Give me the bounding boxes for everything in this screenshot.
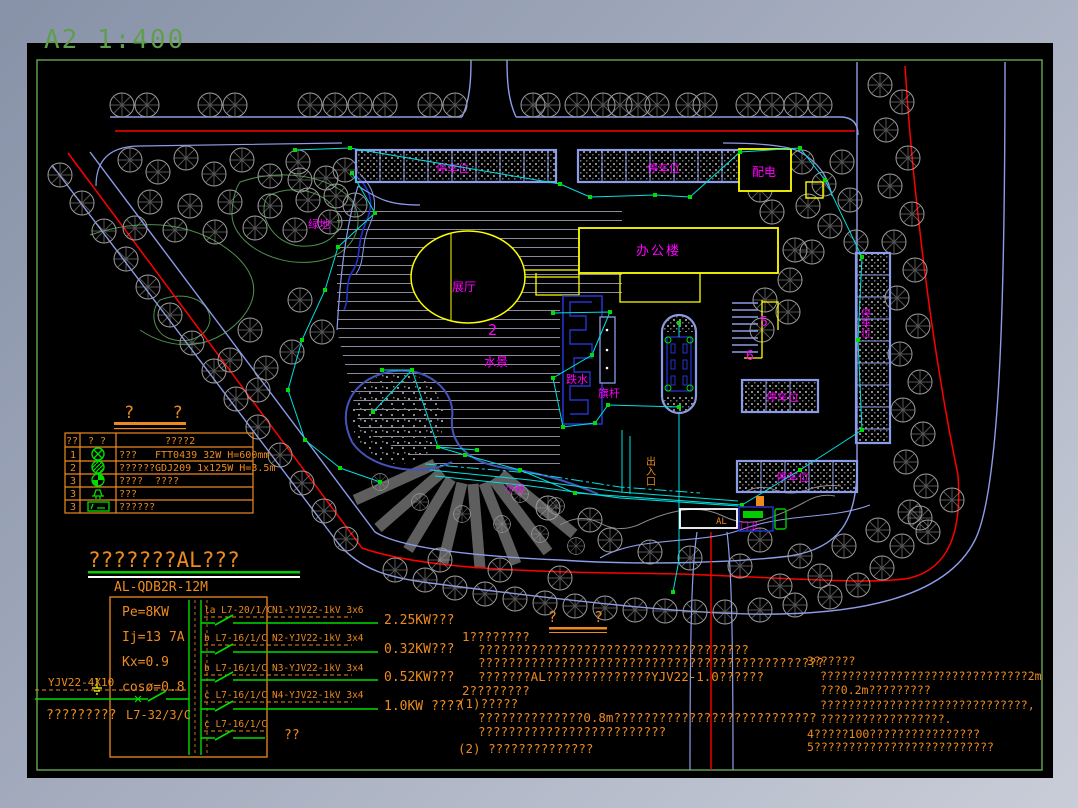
svg-text:Pe=8KW: Pe=8KW [122,605,169,620]
exhibition-hall [411,231,525,323]
incoming-breaker: L7-32/3/C [126,708,191,722]
cascade-label: 跌水 [566,372,588,386]
svg-text:1: 1 [70,450,76,461]
legend-col-desc: ????2 [165,436,195,447]
note-line: ???????AL??????????????YJV22-1.0?????? [478,669,764,684]
svg-text:??????: ?????? [119,463,155,474]
schematic-title: ???????AL??? [88,548,240,572]
parking-label: 停车位 [647,161,680,175]
circuit-cable: N1-YJV22-1kV 3x6 [272,605,364,616]
note-line: 3?????? [807,654,855,668]
circuit-cable: N4-YJV22-1kV 3x4 [272,690,364,701]
note-line: ????????????????????????????????????????… [478,655,824,670]
lamp-hatched-circle-icon [92,461,104,473]
office-label: 办公楼 [636,244,681,259]
note-line: ??????????????0.8m??????????????????????… [478,710,817,725]
legend-col-symbol: ? ? [88,436,106,447]
green-area-label: 绿地 [308,217,330,231]
level-number-5: 5 [760,315,768,330]
cad-viewer: A2 1:400 [0,0,1078,808]
svg-text:Kx=0.9: Kx=0.9 [122,655,169,670]
legend-title: ? ? [124,403,197,423]
circuit-breaker: c L7-16/1/C [204,690,267,701]
entrance-label: 出入口 [644,455,656,486]
plan-number-2: 2 [488,321,497,339]
note-line: ??????????????????????????????, [820,698,1035,712]
gate-panel-label: AL [716,517,727,527]
cascade-structure [563,296,602,424]
flagpole-label: 旗杆 [598,386,620,400]
gate-house-label: 门卫 [740,520,758,532]
circuit-load: 1.0KW ???? [384,699,462,714]
circuit-load: 0.32KW??? [384,642,454,657]
note-line: ???0.2m????????? [820,683,931,697]
note-line: (2) ?????????????? [458,741,593,756]
note-line: 4?????100???????????????? [807,727,980,741]
path-label: 小径 [505,482,525,495]
circuit-breaker: b L7-16/1/C [204,633,267,644]
water-label: 水景 [484,355,508,369]
svg-text:GDJ209 1x125W H=3.5m: GDJ209 1x125W H=3.5m [155,463,275,474]
circuit-breaker: b L7-16/1/C [204,663,267,674]
svg-text:Ij=13 7A: Ij=13 7A [122,630,185,645]
note-line: ????????????????????????? [478,724,666,739]
svg-text:cosø=0.8: cosø=0.8 [122,680,185,695]
sheet-scale-label: A2 1:400 [44,25,185,55]
incoming-cable: YJV22-4X10 [48,676,114,689]
circuit-cable: N3-YJV22-1kV 3x4 [272,663,364,674]
circuit-load: 0.52KW??? [384,670,454,685]
circuit-breaker: c L7-16/1/C [204,719,267,730]
svg-text:3: 3 [70,489,76,500]
circuit-cable: N2-YJV22-1kV 3x4 [272,633,364,644]
svg-text:????: ???? [119,476,143,487]
svg-text:3: 3 [70,502,76,513]
note-line: 5?????????????????????????? [807,740,994,754]
svg-text:FTT0439 32W H=600mm: FTT0439 32W H=600mm [155,450,269,461]
svg-text:???: ??? [119,489,137,500]
power-room-label: 配电 [752,165,776,179]
incoming-label: ????????? [46,708,116,723]
note-line: ??????????????????????????????2m [820,669,1042,683]
note-line: (1)????? [458,696,518,711]
circuit-load: 2.25KW??? [384,613,454,628]
svg-text:????: ???? [155,476,179,487]
notes-title: ? ? [548,608,617,626]
parking-label-vertical: 停车位 [859,307,871,338]
lamp-quad-petal-icon [92,474,104,486]
gate-marker [756,496,764,506]
parking-label: 停车位 [766,390,799,404]
svg-text:2: 2 [70,463,76,474]
circuit-breaker: la L7-20/1/C [204,605,273,616]
circuit-load: ?? [284,728,300,743]
note-line: ??????????????????. [820,712,952,726]
drawing-canvas[interactable]: A2 1:400 [0,0,1078,808]
svg-text:??????: ?????? [119,502,155,513]
svg-text:???: ??? [119,450,137,461]
panel-model: AL-QDB2R-12M [114,580,208,595]
svg-text:3: 3 [70,476,76,487]
exhibition-label: 展厅 [452,280,476,294]
legend-col-no: ?? [66,436,78,447]
level-number-6: 6 [746,349,754,364]
